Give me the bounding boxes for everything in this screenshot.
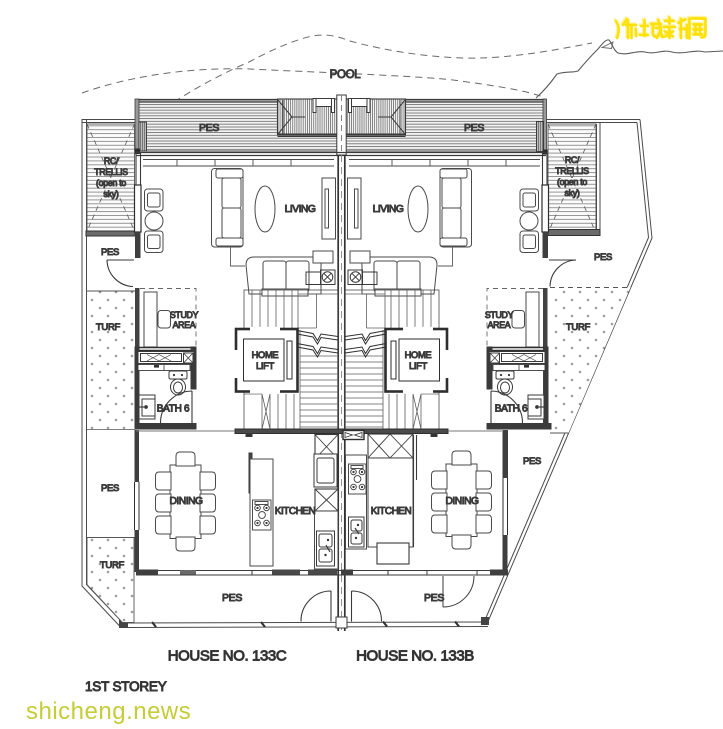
svg-text:DINING: DINING — [169, 496, 203, 507]
svg-text:LIFT: LIFT — [409, 361, 428, 371]
svg-text:KITCHEN: KITCHEN — [371, 506, 412, 517]
svg-text:DINING: DINING — [445, 496, 479, 507]
svg-text:PES: PES — [424, 592, 444, 604]
svg-text:AREA: AREA — [488, 320, 511, 330]
svg-text:PES: PES — [101, 247, 119, 258]
svg-text:LIVING: LIVING — [285, 204, 316, 215]
svg-text:STUDY: STUDY — [485, 310, 514, 320]
svg-text:KITCHEN: KITCHEN — [275, 506, 316, 517]
svg-text:HOME: HOME — [405, 350, 432, 360]
svg-text:LIVING: LIVING — [373, 204, 404, 215]
svg-text:RC/: RC/ — [565, 155, 580, 165]
svg-text:HOUSE NO. 133B: HOUSE NO. 133B — [356, 648, 474, 665]
svg-text:POOL: POOL — [330, 69, 362, 81]
svg-text:(open to: (open to — [96, 178, 126, 188]
svg-text:PES: PES — [222, 592, 242, 604]
svg-text:(open to: (open to — [557, 177, 587, 187]
svg-text:TRELLIS: TRELLIS — [94, 167, 128, 177]
svg-text:LIFT: LIFT — [256, 361, 275, 371]
svg-text:PES: PES — [594, 252, 612, 263]
svg-text:HOUSE NO. 133C: HOUSE NO. 133C — [168, 648, 287, 665]
svg-text:sky): sky) — [104, 189, 119, 199]
svg-text:AREA: AREA — [173, 320, 196, 330]
svg-text:PES: PES — [199, 122, 219, 134]
svg-text:TURF: TURF — [100, 560, 125, 571]
svg-text:1ST STOREY: 1ST STOREY — [85, 679, 167, 694]
svg-text:TURF: TURF — [96, 322, 121, 333]
svg-text:PES: PES — [464, 122, 484, 134]
svg-text:TURF: TURF — [566, 322, 591, 333]
svg-text:shicheng.news: shicheng.news — [26, 698, 191, 725]
svg-text:RC/: RC/ — [104, 156, 119, 166]
svg-text:sky): sky) — [565, 188, 580, 198]
svg-text:STUDY: STUDY — [170, 310, 199, 320]
svg-text:BATH 6: BATH 6 — [495, 404, 528, 415]
svg-text:TRELLIS: TRELLIS — [555, 166, 589, 176]
svg-text:BATH 6: BATH 6 — [157, 404, 190, 415]
svg-text:HOME: HOME — [252, 350, 279, 360]
svg-text:PES: PES — [101, 483, 119, 494]
svg-text:PES: PES — [523, 456, 541, 467]
